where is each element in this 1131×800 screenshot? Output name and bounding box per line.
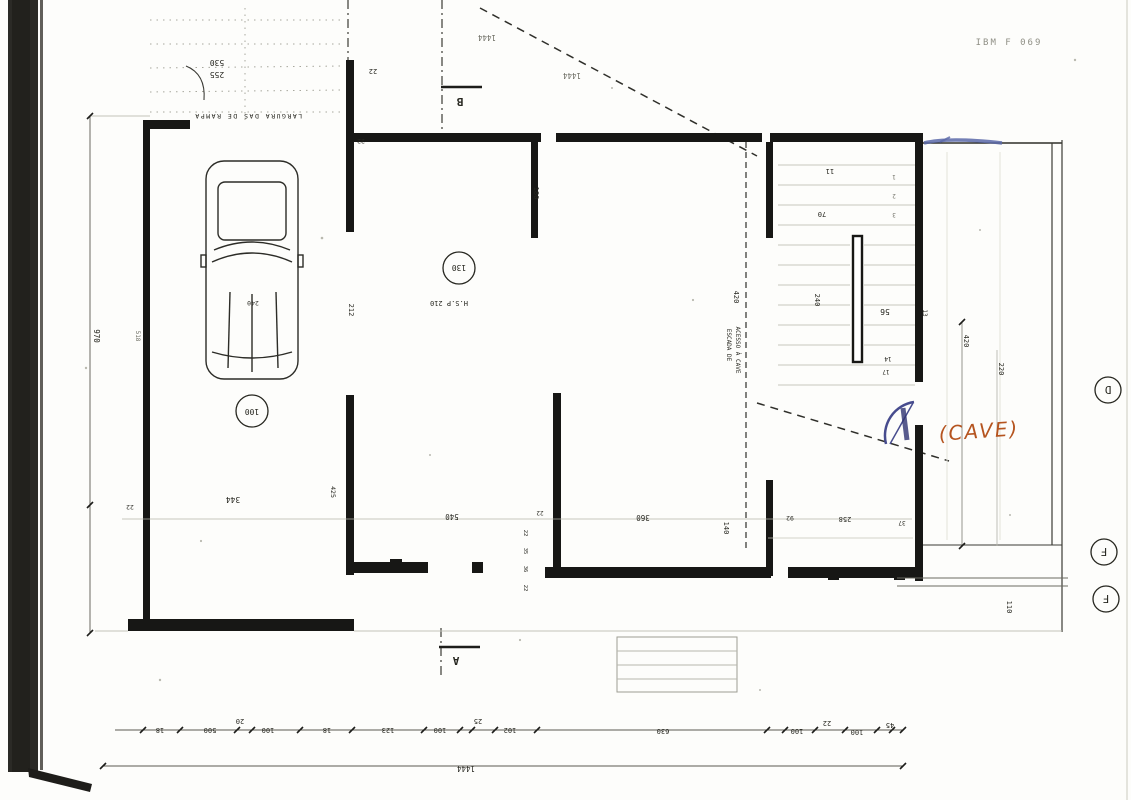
grid-marker-f2: F: [1103, 592, 1110, 605]
bc-102: 102: [504, 726, 517, 734]
column: [472, 562, 483, 573]
interior-wall-1-lower: [553, 393, 561, 576]
top-wall-seg-2: [556, 133, 762, 142]
garage-right-wall-lower: [346, 395, 354, 575]
bc-100c: 100: [791, 727, 804, 735]
garage-left-wall: [143, 120, 150, 630]
floorplan-drawing: IBM F 069 1444 1444 530 255 LARGURA DAS …: [0, 0, 1131, 800]
room-number-130: 130: [452, 263, 467, 272]
paper-right-edge: [1126, 0, 1128, 800]
bc-630: 630: [657, 727, 670, 735]
ramp-hatch-lines: [150, 8, 344, 120]
dim-22-a: 22: [369, 67, 377, 75]
dim-70: 70: [818, 210, 826, 218]
dim-37: 37: [898, 519, 906, 526]
dim-360: 360: [636, 513, 650, 522]
scan-strip-inner: [12, 0, 30, 772]
grid-marker-f1: F: [1101, 545, 1108, 558]
dim-22-c: 22: [126, 503, 134, 511]
dim-14: 14: [884, 355, 892, 362]
dim-top-1: 1444: [477, 33, 496, 42]
page-corner-fold: [28, 768, 92, 792]
car-dim-240: 240: [247, 299, 259, 307]
column: [828, 569, 839, 580]
dim-22-b: 22: [357, 137, 365, 145]
dim-258: 258: [839, 515, 852, 523]
garage-right-wall-upper: [346, 60, 354, 232]
cave-handwritten-note: (CAVE): [938, 416, 1020, 446]
dim-140: 140: [722, 522, 730, 535]
sheet-stamp: IBM F 069: [976, 38, 1043, 48]
column: [231, 619, 244, 631]
right-wall-lower: [915, 425, 923, 581]
dim-180: 180: [532, 187, 540, 200]
right-wall-upper: [915, 142, 923, 382]
dim-total-1444: 1444: [456, 764, 475, 773]
dim-518: 518: [134, 331, 141, 342]
ceiling-height-label: H.S.P 210: [430, 299, 468, 307]
dim-420-left: 420: [732, 291, 740, 304]
car-windshield-1: [214, 242, 290, 250]
room-number-100: 100: [245, 407, 260, 416]
dim-22-d: 22: [536, 509, 544, 516]
car-mirror-right: [298, 255, 303, 267]
bc-45: 45: [886, 721, 894, 729]
dim-220: 220: [997, 363, 1005, 376]
garage-right-bottom-stub: [346, 562, 428, 573]
bc-100d: 100: [851, 728, 864, 736]
interior-wall-2-upper: [766, 142, 773, 238]
scanned-floorplan-page: IBM F 069 1444 1444 530 255 LARGURA DAS …: [0, 0, 1131, 800]
dim-13: 13: [921, 309, 928, 317]
dim-212: 212: [347, 304, 355, 317]
column: [317, 619, 330, 631]
bc-18: 18: [156, 726, 164, 734]
bc-100a: 100: [262, 726, 275, 734]
column: [390, 559, 402, 571]
exterior-steps: [617, 637, 737, 692]
bc-500: 500: [204, 726, 217, 734]
annotations: IBM F 069 1444 1444 530 255 LARGURA DAS …: [92, 33, 1111, 773]
dim-17: 17: [882, 368, 890, 375]
stair-label-2: ACESSO À CAVE: [734, 327, 741, 374]
stair-label-1: ESCADA DE: [725, 329, 732, 362]
car-mirror-left: [201, 255, 206, 267]
dim-425: 425: [329, 486, 337, 498]
car-hood-line: [276, 292, 278, 368]
scan-strip-line: [40, 0, 43, 770]
interior-wall-2-lower: [766, 480, 773, 576]
ramp-label: LARGURA DAS DE RAMPA: [194, 112, 302, 120]
bc-25: 25: [474, 717, 482, 725]
bc-20: 20: [236, 717, 244, 725]
blue-pen-marks: [885, 137, 1002, 444]
stair-step-2: 2: [892, 192, 896, 199]
grid-marker-d: D: [1105, 383, 1112, 396]
top-wall-seg-3: [770, 133, 923, 142]
stair-step-1: 1: [892, 173, 896, 180]
bc-18b: 18: [323, 726, 331, 734]
bc-22: 22: [823, 719, 831, 727]
dim-240-stair: 240: [813, 294, 821, 307]
dim-540: 540: [445, 512, 459, 521]
garage-side-door-arc: [186, 66, 204, 100]
drawing-layer: IBM F 069 1444 1444 530 255 LARGURA DAS …: [85, 0, 1121, 773]
dim-11: 11: [826, 167, 834, 175]
section-marker-a: A: [452, 654, 459, 667]
dim-92: 92: [786, 514, 794, 522]
bottom-wall-seg-1: [545, 567, 771, 578]
dim-255: 255: [210, 70, 225, 79]
dimension-lines: [87, 87, 997, 769]
section-marker-b: B: [456, 95, 463, 108]
car-windshield-2: [212, 253, 292, 262]
vchain-22a: 22: [522, 530, 528, 537]
dim-56: 56: [880, 307, 890, 316]
vchain-22b: 22: [522, 585, 528, 592]
vchain-35: 35: [522, 548, 528, 555]
car-roof: [218, 182, 286, 240]
top-wall-seg-1: [354, 133, 541, 142]
stair-step-3: 3: [892, 211, 896, 218]
car-symbol: [201, 161, 303, 379]
bc-100b: 100: [434, 726, 447, 734]
scan-speckles: [85, 59, 1076, 691]
garage-top-stub: [145, 120, 190, 129]
dim-top-2: 1444: [562, 71, 581, 80]
dim-344: 344: [226, 495, 241, 504]
stair-railing-wall: [853, 236, 862, 362]
bc-123: 123: [382, 726, 395, 734]
dim-970: 970: [92, 329, 101, 343]
dim-530: 530: [210, 58, 225, 67]
dim-110: 110: [1005, 601, 1013, 614]
blue-ink-blob: [903, 408, 907, 440]
dim-420-right: 420: [962, 335, 970, 348]
vchain-36: 36: [522, 566, 528, 573]
